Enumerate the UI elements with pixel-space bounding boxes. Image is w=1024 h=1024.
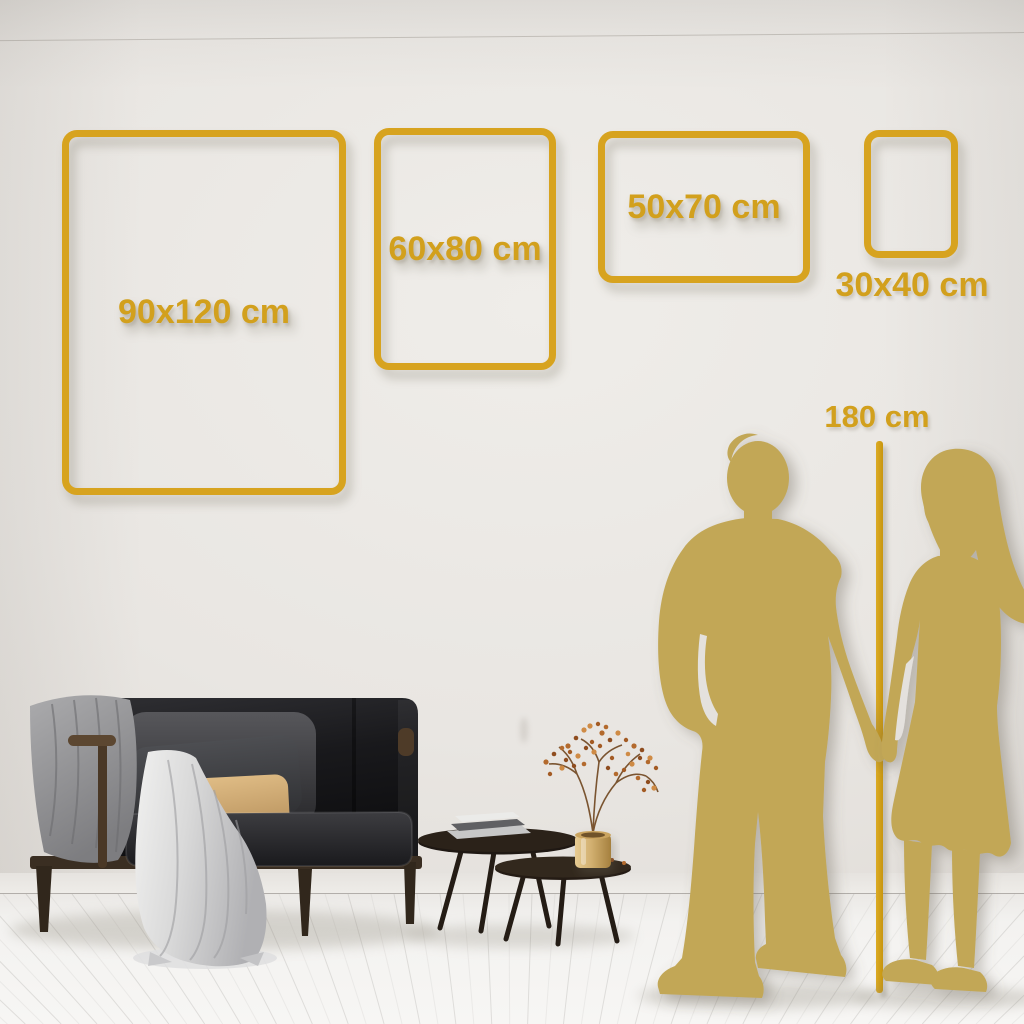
size-frame-90x120cm: 90x120 cm (62, 130, 346, 495)
sofa-wood-dowel-left (68, 735, 116, 746)
baseboard (0, 873, 1024, 894)
dried-berry-plant (543, 722, 658, 868)
brass-vase (575, 831, 611, 868)
tan-cushion (165, 774, 291, 838)
sofa-back-cushion (124, 712, 316, 826)
floor (0, 894, 1024, 1024)
size-label-30x40cm: 30x40 cm (816, 266, 1008, 305)
size-frame-60x80cm: 60x80 cm (374, 128, 556, 370)
sofa-arm-edge (352, 698, 356, 858)
gray-throw-blanket (30, 695, 137, 863)
sofa-wood-dowel-right (398, 728, 414, 756)
size-frame-30x40cm (864, 130, 958, 258)
dark-cushion (129, 734, 303, 827)
sofa-wood-post (98, 736, 107, 868)
wall-smudge (520, 717, 528, 743)
sofa-arm-highlight (398, 700, 418, 858)
wall-ceiling-line (0, 32, 1024, 41)
size-label-50x70cm: 50x70 cm (627, 188, 780, 227)
sofa-rail (30, 856, 422, 869)
woman-hair (921, 449, 1024, 624)
plant-berries (543, 722, 658, 865)
height-label: 180 cm (796, 399, 958, 435)
size-frame-50x70cm: 50x70 cm (598, 131, 810, 283)
size-label-90x120cm: 90x120 cm (118, 293, 290, 332)
size-label-60x80cm: 60x80 cm (388, 230, 541, 269)
seat-cushion (126, 812, 412, 866)
size-guide-scene: 90x120 cm 60x80 cm 50x70 cm 30x40 cm 180… (0, 0, 1024, 1024)
table-top-large (418, 830, 578, 855)
table-top-large-face (418, 828, 578, 852)
height-reference-line (876, 441, 883, 993)
book-stack (447, 812, 531, 839)
sofa-body (58, 698, 418, 860)
